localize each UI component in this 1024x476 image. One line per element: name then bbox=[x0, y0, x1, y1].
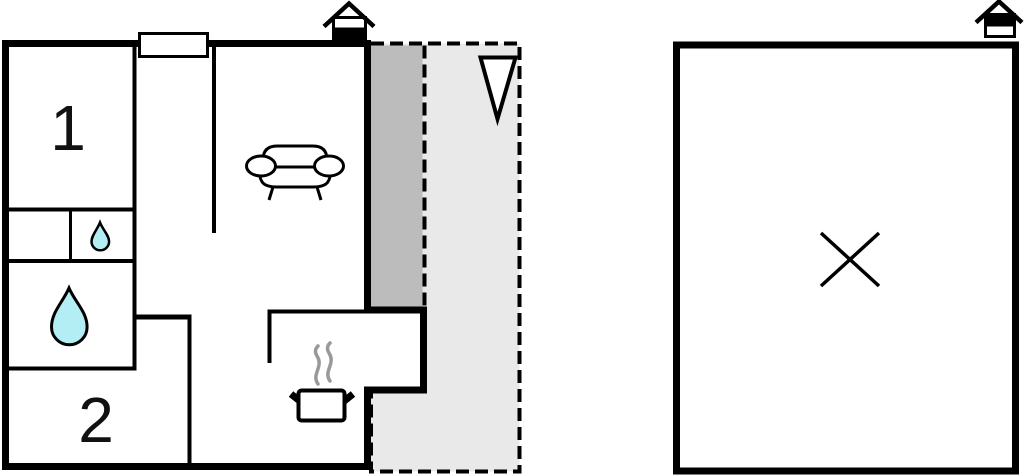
floorplan-image: 1 2 bbox=[0, 0, 1024, 476]
covered-terrace-strip bbox=[370, 46, 423, 308]
house-filled-upper-half bbox=[987, 16, 1013, 27]
room-2-label: 2 bbox=[78, 384, 114, 456]
sofa-armrest-right bbox=[315, 156, 344, 176]
floorplan-ground-floor: 1 2 bbox=[3, 4, 520, 472]
room-1-label: 1 bbox=[50, 92, 86, 164]
house-filled-lower-half bbox=[335, 28, 364, 39]
house-level-ground-icon bbox=[324, 4, 374, 40]
pot-body bbox=[299, 391, 345, 421]
floorplan-upper-floor bbox=[677, 2, 1023, 472]
house-level-upper-icon bbox=[976, 2, 1022, 37]
floorplan-svg: 1 2 bbox=[0, 0, 1024, 476]
sofa-armrest-left bbox=[247, 156, 276, 176]
window-icon bbox=[140, 34, 208, 57]
